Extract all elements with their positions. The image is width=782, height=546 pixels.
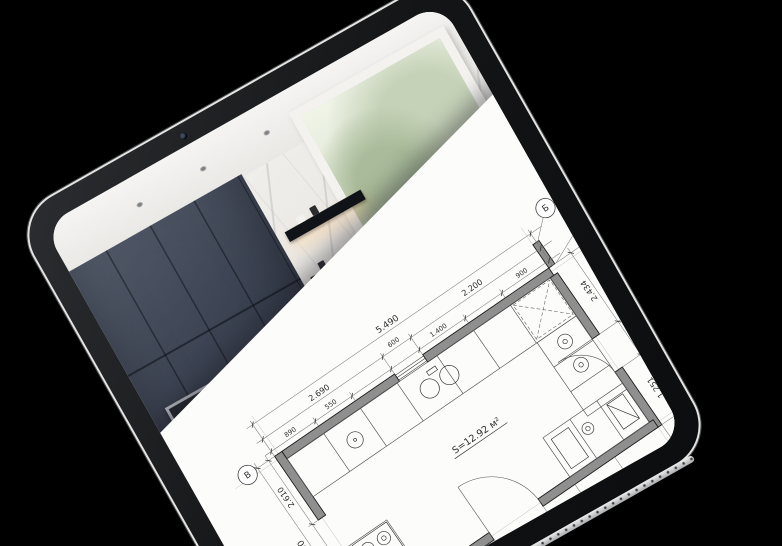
marketing-stage: S=12.92 м² [0, 0, 782, 546]
dim-900: 900 [514, 266, 529, 280]
room-area-label: S=12.92 м² [451, 415, 503, 456]
tablet-device: S=12.92 м² [11, 0, 718, 546]
front-camera-icon [179, 131, 189, 141]
spotlight-icon [136, 201, 145, 209]
spotlight-icon [199, 165, 208, 173]
dim-top-c: 2.200 [460, 276, 485, 297]
window-symbol [396, 355, 428, 379]
dim-top-b: 600 [386, 335, 401, 349]
dim-890: 890 [283, 425, 298, 439]
dim-600: 600 [629, 525, 644, 539]
dim-top-total: 5.490 [375, 313, 402, 336]
dim-bottom-c: 2.140 [642, 529, 667, 546]
tablet-screen: S=12.92 м² [43, 2, 684, 546]
spotlight-icon [263, 129, 272, 137]
dim-top-a: 2.690 [307, 381, 332, 402]
dim-right-total: 3.685 [627, 310, 650, 337]
appliance-symbols [551, 391, 641, 468]
grid-bubble-2: 2 [582, 208, 592, 219]
dim-right-b: 1.251 [645, 375, 666, 400]
dim-550: 550 [324, 397, 339, 411]
